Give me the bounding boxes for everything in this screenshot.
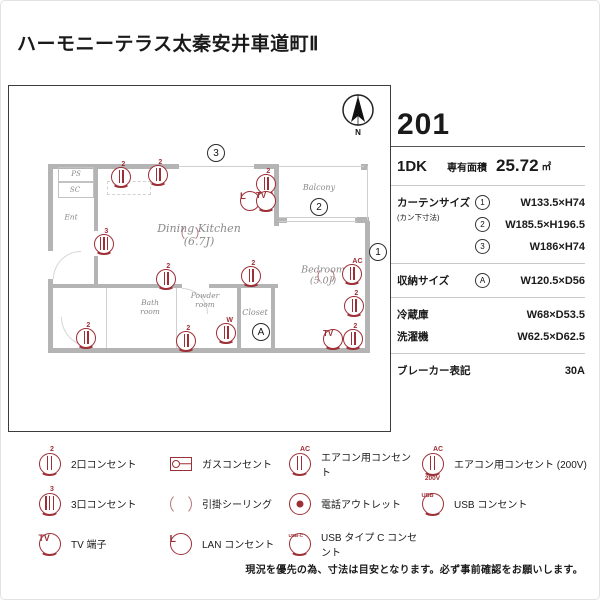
legend-item: 33口コンセント: [36, 490, 167, 517]
storage-size-row: 収納サイズ A W120.5×D56: [391, 263, 585, 297]
legend-item: LLAN コンセント: [167, 530, 286, 557]
washer-row: 洗濯機 W62.5×D62.5: [397, 329, 585, 344]
legend-item: USBUSB コンセント: [419, 490, 592, 517]
legend-item: ACエアコン用コンセント: [286, 450, 419, 477]
legend-item-label: 3口コンセント: [71, 496, 137, 511]
fridge-row: 冷蔵庫 W68×D53.5: [397, 307, 585, 322]
compass-north-label: N: [355, 128, 361, 137]
curtain-row-1: 1 W133.5×H74: [475, 195, 585, 210]
legend-icon-cell: L: [167, 533, 194, 555]
legend-item-label: ガスコンセント: [202, 456, 272, 471]
legend-icon-cell: USB: [419, 493, 446, 515]
outlet-icon: 2: [39, 453, 61, 475]
legend-icon-cell: AC: [286, 453, 313, 475]
ceiling-icon: [170, 493, 192, 515]
unit-layout: 1DK: [397, 158, 427, 175]
legend-item-label: LAN コンセント: [202, 536, 274, 551]
legend-item: USB-CUSB タイプ C コンセント: [286, 530, 419, 557]
fridge-value: W68×D53.5: [429, 309, 586, 321]
curtain-marker-3: 3: [475, 239, 490, 254]
legend-item-label: エアコン用コンセント: [321, 449, 419, 479]
curtain-row-2: 2 W185.5×H196.5: [475, 217, 585, 232]
door-swing-arc: [53, 251, 81, 279]
wall-segment: [48, 279, 53, 353]
window-line: [279, 166, 364, 167]
window-line: [179, 166, 254, 167]
outlet-icon: 3: [94, 234, 114, 254]
curtain-value-3: W186×H74: [494, 241, 585, 253]
room-label-sc: SC: [70, 186, 80, 194]
legend-item: TVTV 端子: [36, 530, 167, 557]
legend-icon-cell: 2: [36, 453, 63, 475]
page-title: ハーモニーテラス太秦安井車道町Ⅱ: [17, 29, 319, 56]
unit-info-panel: 201 1DK 専有面積 25.72 ㎡ カーテンサイズ (カン下寸法) 1 W…: [391, 110, 585, 387]
usb-icon: USB: [422, 493, 444, 515]
ceiling-icon: [182, 225, 199, 242]
ac-icon: AC200V: [422, 453, 444, 475]
tv-icon: TV: [39, 533, 61, 555]
room-label-closet: Closet: [242, 308, 268, 318]
storage-value: W120.5×D56: [490, 275, 585, 287]
legend-item-label: 電話アウトレット: [321, 496, 401, 511]
legend-item-label: USB タイプ C コンセント: [321, 529, 419, 559]
ceiling-icon: [318, 268, 335, 285]
disclaimer-note: 現況を優先の為、寸法は目安となります。必ず事前確認をお願いします。: [245, 561, 583, 576]
window-line: [106, 288, 107, 348]
circled-marker-2: 2: [310, 198, 328, 216]
wall-segment: [48, 164, 53, 251]
floorplan: N PSSCEntDining Kitchen(6.7J)BalconyBedr…: [8, 85, 391, 432]
compass-icon: N: [338, 91, 378, 137]
lan-icon: L: [170, 533, 192, 555]
curtain-sublabel: (カン下寸法): [397, 212, 475, 223]
curtain-marker-1: 1: [475, 195, 490, 210]
gas-icon: [170, 457, 192, 471]
outlet-icon: 2: [176, 331, 196, 351]
legend-item-label: TV 端子: [71, 536, 107, 551]
storage-label: 収納サイズ: [397, 273, 475, 288]
legend-icon-cell: 3: [36, 493, 63, 515]
legend-icon-cell: TV: [36, 533, 63, 555]
legend-icon-cell: [167, 493, 194, 515]
wall-segment: [365, 221, 370, 353]
wall-segment: [237, 284, 241, 348]
legend-item: AC200Vエアコン用コンセント (200V): [419, 450, 592, 477]
legend-item-label: USB コンセント: [454, 496, 527, 511]
outlet-icon: 2: [156, 269, 176, 289]
room-label-balcony: Balcony: [303, 183, 335, 193]
room-label-ent: Ent: [64, 213, 77, 222]
legend-item-label: エアコン用コンセント (200V): [454, 456, 587, 471]
outlet-icon: 2: [148, 165, 168, 185]
room-label-bath: Bathroom: [140, 298, 160, 316]
outlet-icon: 2: [76, 328, 96, 348]
tv-icon: TV: [256, 191, 276, 211]
room-label-ps: PS: [71, 170, 81, 178]
legend-icon-cell: [167, 457, 194, 471]
area-unit: ㎡: [542, 159, 552, 173]
outlet-icon: 2: [241, 266, 261, 286]
phone-icon: [289, 493, 311, 515]
curtain-size-section: カーテンサイズ (カン下寸法) 1 W133.5×H74 2 W185.5×H1…: [391, 185, 585, 263]
legend-icon-cell: USB-C: [286, 533, 313, 555]
curtain-label: カーテンサイズ: [397, 195, 475, 210]
tv-icon: TV: [323, 329, 343, 349]
outlet-icon: 2: [111, 167, 131, 187]
room-label-powder: Powderroom: [191, 291, 220, 309]
area-value: 25.72: [496, 156, 539, 176]
breaker-row: ブレーカー表記 30A: [391, 353, 585, 387]
outlet-icon: 2: [344, 296, 364, 316]
ac-icon: AC: [342, 264, 362, 284]
storage-marker: A: [475, 273, 490, 288]
washer-value: W62.5×D62.5: [429, 331, 586, 343]
room-label-dining-kitchen: Dining Kitchen(6.7J): [157, 222, 241, 248]
wall-segment: [94, 164, 98, 231]
curtain-value-2: W185.5×H196.5: [494, 219, 585, 231]
curtain-marker-2: 2: [475, 217, 490, 232]
outlet-icon: 2: [343, 329, 363, 349]
outlet-icon: W: [216, 323, 236, 343]
ac-icon: AC: [289, 453, 311, 475]
circled-marker-A: A: [252, 323, 270, 341]
layout-area-row: 1DK 専有面積 25.72 ㎡: [391, 146, 585, 185]
legend-icon-cell: [286, 493, 313, 515]
unit-number: 201: [397, 110, 585, 140]
legend-icon-cell: AC200V: [419, 453, 446, 475]
breaker-label: ブレーカー表記: [397, 363, 471, 378]
circled-marker-1: 1: [369, 243, 387, 261]
wall-segment: [94, 256, 98, 284]
circled-marker-3: 3: [207, 144, 225, 162]
window-line: [279, 217, 357, 218]
legend-item-label: 2口コンセント: [71, 456, 137, 471]
washer-label: 洗濯機: [397, 329, 429, 344]
legend-item: 22口コンセント: [36, 450, 167, 477]
legend-item-label: 引掛シーリング: [202, 496, 272, 511]
legend-item: ガスコンセント: [167, 450, 286, 477]
legend-item: 引掛シーリング: [167, 490, 286, 517]
wall-segment: [48, 348, 370, 353]
wall-segment: [271, 284, 275, 348]
legend-item: 電話アウトレット: [286, 490, 419, 517]
appliance-section: 冷蔵庫 W68×D53.5 洗濯機 W62.5×D62.5: [391, 297, 585, 353]
window-line: [367, 166, 368, 220]
curtain-value-1: W133.5×H74: [494, 197, 585, 209]
window-line: [279, 221, 357, 222]
legend: 22口コンセントガスコンセントACエアコン用コンセントAC200Vエアコン用コン…: [36, 450, 592, 557]
fridge-label: 冷蔵庫: [397, 307, 429, 322]
usbc-icon: USB-C: [289, 533, 311, 555]
area-label: 専有面積: [447, 159, 487, 174]
outlet-icon: 3: [39, 493, 61, 515]
breaker-value: 30A: [471, 365, 586, 377]
curtain-row-3: 3 W186×H74: [475, 239, 585, 254]
